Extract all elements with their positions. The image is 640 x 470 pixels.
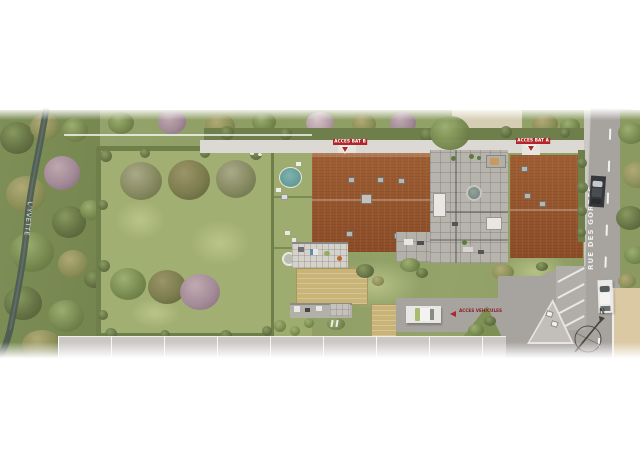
deck-furniture bbox=[276, 188, 281, 192]
bush bbox=[290, 326, 300, 336]
skylight bbox=[348, 177, 355, 183]
tree bbox=[618, 274, 636, 288]
hedge-bush bbox=[500, 126, 512, 138]
car-rear-window bbox=[430, 309, 434, 320]
garden-divider-hedge bbox=[272, 196, 312, 198]
skylight bbox=[377, 177, 384, 183]
terrace-plant bbox=[462, 240, 467, 245]
bush bbox=[274, 320, 286, 332]
skylight bbox=[521, 166, 528, 172]
lane-dash bbox=[606, 225, 608, 236]
lane-dash bbox=[608, 161, 610, 172]
car-windshield bbox=[592, 181, 602, 188]
car-roof bbox=[420, 308, 430, 321]
access-label-building-b: ACCES BAT B bbox=[333, 139, 367, 145]
grass-patch bbox=[115, 200, 165, 240]
terrace-furniture bbox=[478, 250, 484, 254]
car-roof bbox=[600, 293, 610, 304]
ground-terrace bbox=[292, 242, 348, 268]
terrace-pot bbox=[337, 256, 342, 261]
bay-line bbox=[557, 283, 584, 299]
shed-item bbox=[294, 306, 300, 312]
skylight bbox=[539, 201, 546, 207]
lane-dash bbox=[609, 129, 611, 140]
car-dark bbox=[589, 176, 606, 208]
bush bbox=[356, 264, 374, 278]
bush bbox=[468, 324, 484, 336]
bush bbox=[416, 268, 428, 278]
vehicle-access-arrow-icon bbox=[450, 311, 456, 317]
tree bbox=[430, 116, 470, 150]
shed-item bbox=[316, 306, 322, 311]
hedge-bush bbox=[577, 206, 587, 216]
terrace-furniture bbox=[298, 247, 304, 252]
roof-hatch bbox=[361, 194, 372, 204]
access-arrow-building-b bbox=[342, 147, 348, 152]
hedge-bush bbox=[220, 126, 234, 140]
terrace-furniture bbox=[433, 193, 446, 217]
terrace-divider bbox=[455, 150, 457, 263]
car-windshield bbox=[600, 286, 610, 292]
terrace-plant bbox=[477, 156, 481, 160]
bottom-margin bbox=[0, 360, 640, 470]
terrace-divider bbox=[430, 239, 508, 241]
boundary-fence-line bbox=[64, 134, 312, 136]
hedge-bush bbox=[98, 200, 108, 210]
bush bbox=[372, 276, 384, 286]
skylight bbox=[524, 193, 531, 199]
car-roof bbox=[592, 188, 603, 198]
terrace-furniture bbox=[310, 249, 318, 255]
compass-north-label: N bbox=[599, 307, 605, 316]
hedge-bush bbox=[262, 326, 272, 336]
bottom-fade bbox=[0, 342, 640, 362]
terrace-furniture bbox=[463, 247, 473, 252]
terrace-furniture bbox=[417, 241, 424, 245]
deck-furniture bbox=[296, 162, 301, 166]
garden-tree bbox=[216, 160, 256, 198]
garden-furniture bbox=[258, 153, 262, 156]
grass-patch bbox=[190, 220, 250, 266]
garden-furniture bbox=[285, 231, 290, 235]
lane-dash bbox=[604, 257, 606, 268]
hedge-bush bbox=[100, 150, 112, 162]
garden-tree-flowering bbox=[180, 274, 220, 310]
vehicle-access-label: ACCES VEHICULES bbox=[459, 309, 502, 313]
tree bbox=[624, 246, 640, 264]
roof-ridge bbox=[510, 209, 583, 211]
hedge-bush bbox=[560, 128, 570, 138]
hedge-bush bbox=[577, 182, 588, 193]
terrace-plant bbox=[451, 156, 456, 161]
spa-tub bbox=[466, 185, 482, 201]
access-arrow-building-a bbox=[528, 146, 534, 151]
garden-tree bbox=[110, 268, 146, 300]
bush bbox=[484, 316, 496, 326]
top-fade bbox=[0, 104, 640, 120]
terrace-furniture bbox=[452, 222, 458, 226]
bush bbox=[304, 318, 314, 328]
bush bbox=[536, 262, 548, 271]
roof-eave-highlight bbox=[312, 153, 430, 157]
terrace-plant bbox=[324, 251, 330, 256]
car-rear-window bbox=[591, 199, 601, 205]
garden-tree bbox=[120, 162, 162, 200]
terrace-furniture bbox=[486, 217, 502, 230]
shed-item bbox=[305, 308, 310, 312]
skylight bbox=[398, 178, 405, 184]
tree bbox=[616, 206, 640, 230]
hedge-bush bbox=[577, 158, 587, 168]
hedge-bush bbox=[98, 310, 108, 320]
round-pool bbox=[279, 167, 302, 188]
shed-tiled-area bbox=[330, 304, 350, 316]
lane-dash bbox=[607, 193, 609, 204]
tree bbox=[618, 122, 640, 144]
hedge-bush bbox=[98, 260, 110, 272]
car-driveway bbox=[406, 306, 441, 323]
terrace-plant bbox=[469, 154, 474, 159]
river-stream bbox=[0, 108, 110, 360]
top-margin bbox=[0, 0, 640, 106]
site-plan: L'YVETTE bbox=[0, 0, 640, 470]
hedge-bush bbox=[140, 148, 150, 158]
terrace-furniture bbox=[404, 239, 413, 245]
garden-tree bbox=[168, 160, 210, 200]
pergola-furniture bbox=[490, 158, 499, 165]
bay-line bbox=[557, 267, 584, 283]
garden-shed bbox=[281, 194, 288, 200]
access-label-building-a: ACCES BAT A bbox=[516, 138, 550, 144]
skylight bbox=[346, 231, 353, 237]
hedge-bush bbox=[577, 228, 586, 237]
